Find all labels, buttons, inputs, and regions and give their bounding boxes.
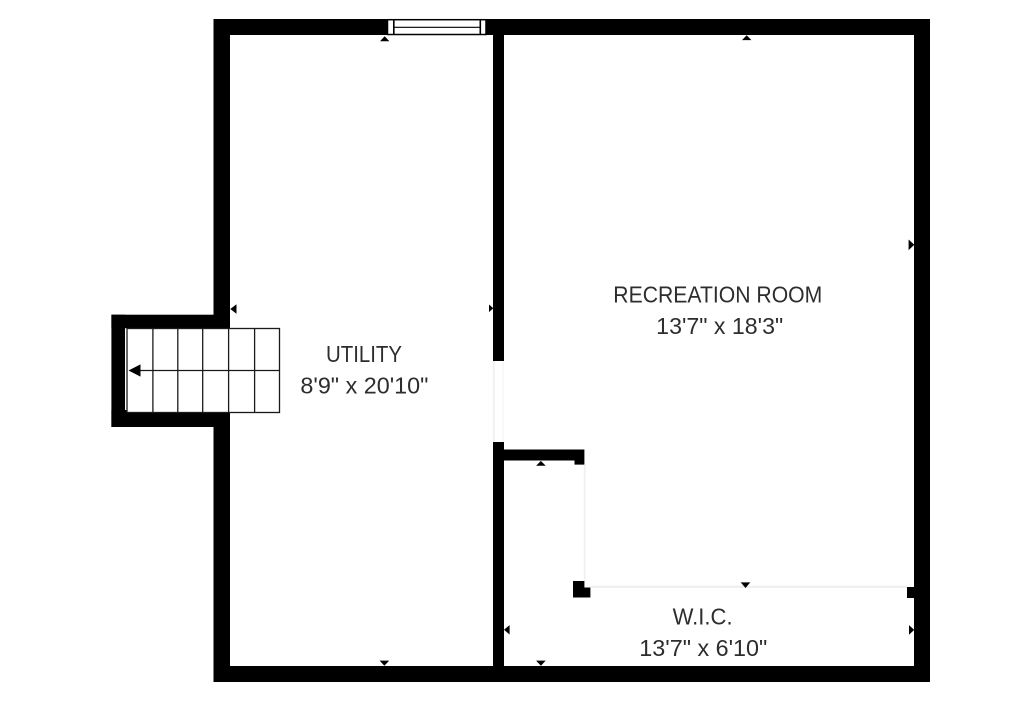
svg-text:13'7" x 18'3": 13'7" x 18'3" xyxy=(656,313,783,339)
svg-text:W.I.C.: W.I.C. xyxy=(673,604,733,630)
svg-text:UTILITY: UTILITY xyxy=(326,341,402,367)
svg-text:RECREATION ROOM: RECREATION ROOM xyxy=(613,282,822,308)
svg-text:13'7" x 6'10": 13'7" x 6'10" xyxy=(639,635,767,661)
svg-text:8'9" x 20'10": 8'9" x 20'10" xyxy=(300,372,428,398)
